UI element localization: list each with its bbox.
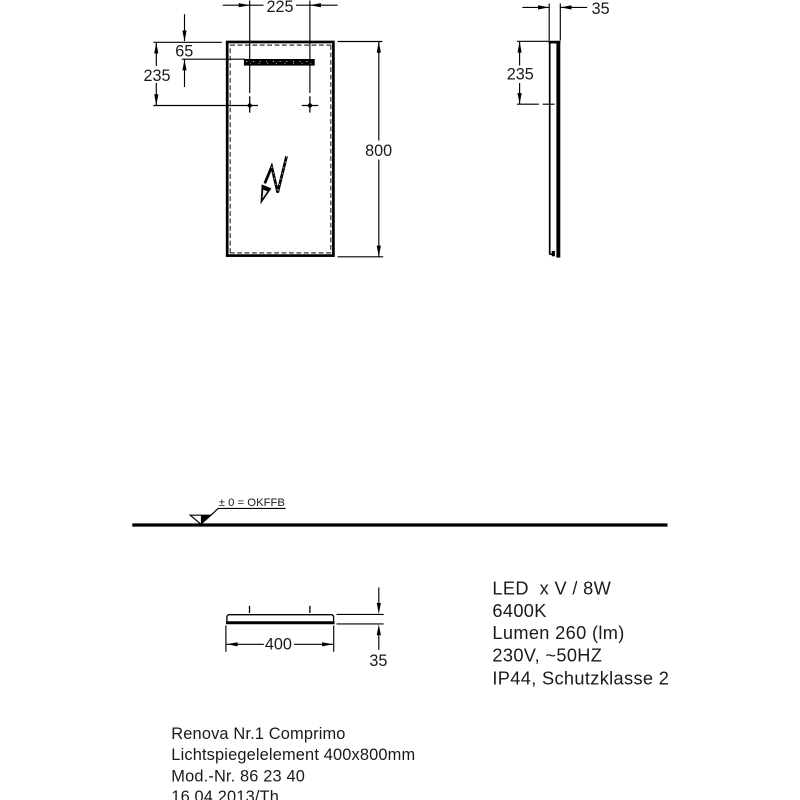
svg-text:230V, ~50HZ: 230V, ~50HZ xyxy=(492,646,602,666)
svg-text:800: 800 xyxy=(365,142,392,160)
svg-text:225: 225 xyxy=(266,0,293,16)
svg-text:235: 235 xyxy=(143,67,170,85)
svg-text:16.04.2013/Th: 16.04.2013/Th xyxy=(171,788,279,800)
svg-text:LED x V / 8W: LED x V / 8W xyxy=(492,579,611,599)
svg-text:IP44, Schutzklasse 2: IP44, Schutzklasse 2 xyxy=(492,668,669,688)
svg-text:Renova Nr.1 Comprimo: Renova Nr.1 Comprimo xyxy=(171,725,345,743)
svg-text:65: 65 xyxy=(175,43,193,61)
svg-text:235: 235 xyxy=(507,66,534,84)
svg-text:Mod.-Nr. 86 23 40: Mod.-Nr. 86 23 40 xyxy=(171,767,305,785)
svg-text:35: 35 xyxy=(592,0,610,18)
svg-text:± 0 = OKFFB: ± 0 = OKFFB xyxy=(219,497,285,509)
svg-text:6400K: 6400K xyxy=(492,601,546,621)
svg-text:Lumen 260 (lm): Lumen 260 (lm) xyxy=(492,623,624,643)
svg-text:35: 35 xyxy=(369,652,387,670)
svg-text:Lichtspiegelelement 400x800mm: Lichtspiegelelement 400x800mm xyxy=(171,746,415,764)
svg-text:400: 400 xyxy=(265,635,292,653)
